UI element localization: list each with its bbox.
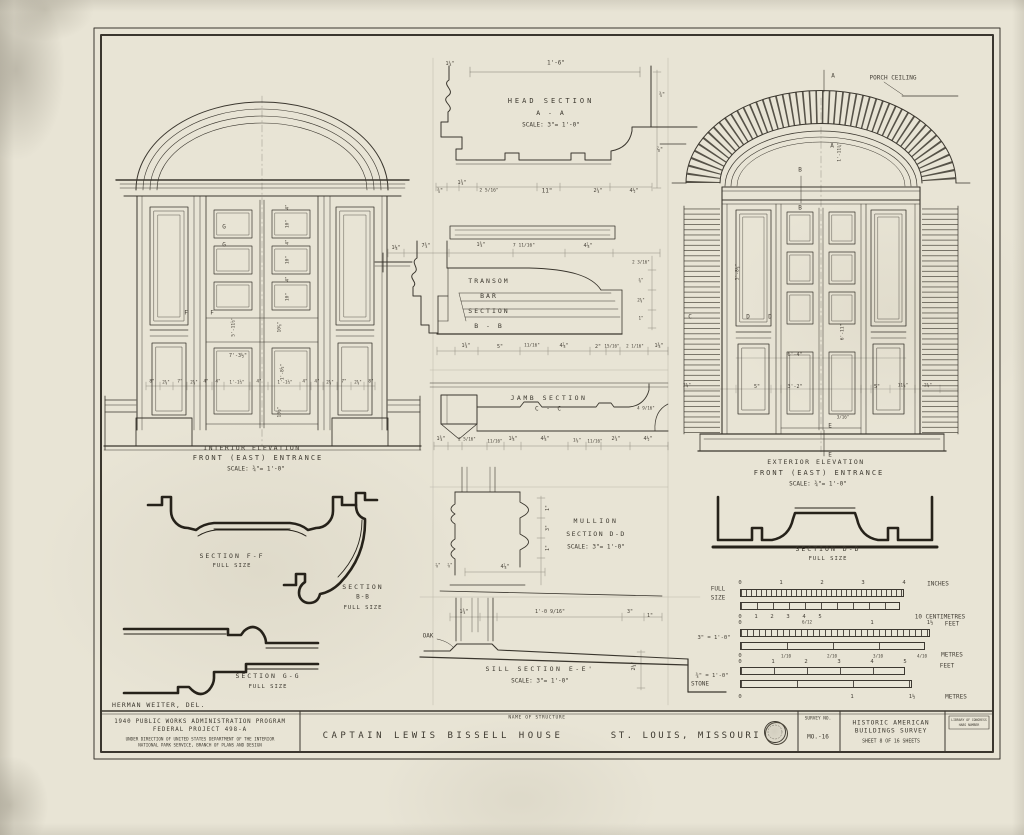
scale-bar-unit: METRES xyxy=(945,694,967,701)
scale-bar-unit: METRES xyxy=(941,652,963,659)
dimension-label: 4⅞" xyxy=(583,243,592,249)
dimension-label: 4" xyxy=(302,380,307,385)
dimension-label: 7¾" xyxy=(421,243,430,249)
title-block-program-line3: UNDER DIRECTION OF UNITED STATES DEPARTM… xyxy=(126,737,275,742)
dimension-label: 1'-0 9/16" xyxy=(535,609,565,615)
dimension-label: G xyxy=(222,224,226,231)
porch-ceiling-label: PORCH CEILING xyxy=(870,75,917,82)
dimension-label: 2¼" xyxy=(631,661,637,670)
dimension-labels-layer: 1'-6"1¼"¾"1¾"2 5/16"11"2¼"4½"¾"⅞"1⅛"7¾"1… xyxy=(0,0,1024,835)
dimension-label: 4⅜" xyxy=(540,436,549,442)
sill-section-title: SILL SECTION E-E' xyxy=(485,665,594,673)
dimension-label: 7 11/16" xyxy=(513,244,535,249)
dimension-label: 1" xyxy=(638,316,643,321)
library-of-congress-line1: LIBRARY OF CONGRESS xyxy=(951,718,986,722)
transom-section-title-4: B - B xyxy=(474,322,504,330)
dimension-label: 4" xyxy=(286,276,291,282)
dimension-label: 2¼" xyxy=(611,436,620,442)
dimension-label: F xyxy=(184,310,188,317)
mullion-section-subtitle: SECTION D-D xyxy=(566,530,626,538)
dimension-label: 3 xyxy=(861,580,864,586)
dimension-label: 5" xyxy=(874,384,880,390)
dimension-label: 3" xyxy=(627,609,633,615)
exterior-elevation-title: EXTERIOR ELEVATION xyxy=(767,458,864,466)
head-section-title: HEAD SECTION xyxy=(508,97,595,105)
structure-name: CAPTAIN LEWIS BISSELL HOUSE xyxy=(323,731,564,741)
scale-bar-label: 3" = 1'-0" xyxy=(697,635,730,641)
dimension-label: 6'-4" xyxy=(787,352,802,358)
mullion-section-scale: SCALE: 3"= 1'-0" xyxy=(567,544,625,551)
dimension-label: 4" xyxy=(215,380,220,385)
name-of-structure-label: NAME OF STRUCTURE xyxy=(508,716,565,721)
scale-bar-label: SIZE xyxy=(711,595,725,602)
dimension-label: 1'-1½" xyxy=(229,380,244,385)
dimension-label: 1¼" xyxy=(445,61,454,67)
dimension-label: 1¾" xyxy=(461,343,470,349)
section-marker-a: A xyxy=(831,73,835,80)
structure-location: ST. LOUIS, MISSOURI xyxy=(611,731,761,741)
habs-title-line1: HISTORIC AMERICAN xyxy=(853,720,930,727)
dimension-label: 11¼" xyxy=(898,384,909,389)
dimension-label: 8" xyxy=(149,380,154,385)
dimension-label: STONE xyxy=(691,681,709,688)
dimension-label: ¾" xyxy=(659,92,665,98)
dimension-label: 1¾" xyxy=(457,180,466,186)
dimension-label: 10" xyxy=(286,256,291,264)
dimension-label: 1 xyxy=(779,580,782,586)
dimension-label: 0 xyxy=(738,694,741,700)
head-section-scale: SCALE: 3"= 1'-0" xyxy=(522,122,580,129)
scale-bar-unit: FEET xyxy=(945,621,959,628)
scale-bar-unit: INCHES xyxy=(927,581,949,588)
dimension-label: 2 5/16" xyxy=(479,189,498,194)
dimension-label: 2 5/16" xyxy=(458,437,476,442)
scale-bar-label: ¾" = 1'-0" xyxy=(695,673,728,679)
dimension-label: 11/16" xyxy=(487,439,502,444)
title-block-program-line1: 1940 PUBLIC WORKS ADMINISTRATION PROGRAM xyxy=(114,719,286,725)
dimension-label: G xyxy=(222,242,226,249)
dimension-label: 4 xyxy=(902,580,905,586)
section-gg-title: SECTION G-G xyxy=(235,672,300,680)
section-bb-size: FULL SIZE xyxy=(344,605,383,611)
survey-stamp xyxy=(765,722,788,745)
dimension-label: 1'-11¾" xyxy=(838,142,843,161)
dimension-label: 6/12 xyxy=(802,620,812,625)
dimension-label: 4" xyxy=(314,380,319,385)
dimension-label: 2⅜" xyxy=(637,298,645,303)
dimension-label: 1'-1½" xyxy=(277,380,292,385)
dimension-label: 4½" xyxy=(643,436,652,442)
scale-bar-unit: 10 CENTIMETRES xyxy=(915,614,966,621)
dimension-label: 4" xyxy=(203,380,208,385)
dimension-label: 4" xyxy=(256,380,261,385)
interior-elevation-scale: SCALE: ¾"= 1'-0" xyxy=(227,466,285,473)
section-marker-e: E xyxy=(828,423,832,430)
dimension-label: 1⅛" xyxy=(573,439,581,444)
dimension-label: 0 xyxy=(738,580,741,586)
dimension-label: 11/16" xyxy=(587,439,602,444)
delineator-credit: HERMAN WEITER, DEL. xyxy=(112,701,205,709)
dimension-label: 11/16" xyxy=(524,344,540,349)
dimension-label: 2 xyxy=(804,659,807,665)
dimension-label: 4⅞" xyxy=(559,343,568,349)
mullion-section-title: MULLION xyxy=(574,517,619,525)
dimension-label: 2 3/16" xyxy=(632,260,650,265)
dimension-label: ⅞" xyxy=(435,564,440,569)
dimension-label: 0 xyxy=(738,659,741,665)
dimension-label: 5 xyxy=(818,614,821,620)
dimension-label: 7'-3½" xyxy=(229,353,247,359)
dimension-label: 7" xyxy=(341,380,346,385)
section-marker-b: B xyxy=(798,205,802,212)
dimension-label: 3'-2" xyxy=(787,384,802,390)
jamb-section-subtitle: C - C xyxy=(535,406,563,413)
dimension-label: 1¾" xyxy=(476,242,485,248)
dimension-label: 1⅛" xyxy=(391,245,400,251)
dimension-label: 1/10 xyxy=(781,654,791,659)
title-block-program-line4: NATIONAL PARK SERVICE, BRANCH OF PLANS A… xyxy=(138,743,262,748)
transom-section-title-1: TRANSOM xyxy=(468,277,509,285)
dimension-label: 1½ xyxy=(909,694,916,700)
dimension-label: 4⅞" xyxy=(500,564,509,570)
head-section-subtitle: A - A xyxy=(536,109,566,117)
dimension-label: 5'-8⅛" xyxy=(736,264,741,281)
dimension-label: 2 xyxy=(820,580,823,586)
scale-bar-label: FULL xyxy=(711,586,725,593)
dimension-label: 4" xyxy=(286,239,291,245)
dimension-label: 1'-8½" xyxy=(281,364,286,381)
dimension-label: 2¾" xyxy=(683,384,691,389)
dimension-label: 10⅞" xyxy=(278,321,283,332)
dimension-label: 4" xyxy=(286,204,291,210)
jamb-section-title: JAMB SECTION xyxy=(511,394,588,402)
dimension-label: 2" xyxy=(595,344,601,350)
dimension-label: 1⅛" xyxy=(508,436,517,442)
dimension-label: 5 xyxy=(903,659,906,665)
dimension-label: F xyxy=(210,310,214,317)
dimension-label: 1 xyxy=(870,620,873,626)
section-marker-d: D xyxy=(768,314,772,321)
dimension-label: 15/16" xyxy=(604,344,619,349)
dimension-label: 3 xyxy=(786,614,789,620)
dimension-label: 6'-11" xyxy=(841,324,846,341)
exterior-elevation-scale: SCALE: ¾"= 1'-0" xyxy=(789,481,847,488)
habs-drawing-sheet: 1'-6"1¼"¾"1¾"2 5/16"11"2¼"4½"¾"⅞"1⅛"7¾"1… xyxy=(0,0,1024,835)
dimension-label: 2⅝" xyxy=(326,380,334,385)
dimension-label: 2¼" xyxy=(593,188,602,194)
section-ff-size: FULL SIZE xyxy=(213,563,252,569)
dimension-label: 2 xyxy=(770,614,773,620)
dimension-label: 3" xyxy=(545,525,551,531)
habs-title-line2: BUILDINGS SURVEY xyxy=(855,728,927,735)
section-bb-title: SECTION xyxy=(342,583,383,591)
dimension-label: 1¾" xyxy=(436,436,445,442)
dimension-label: 4½" xyxy=(629,188,638,194)
dimension-label: 10½" xyxy=(278,406,283,417)
scale-bar-unit: FEET xyxy=(940,663,954,670)
dimension-label: 3 xyxy=(837,659,840,665)
dimension-label: 1" xyxy=(545,505,551,511)
dimension-label: 1" xyxy=(545,545,551,551)
dimension-label: 2⅝" xyxy=(190,380,198,385)
dimension-label: 1 xyxy=(771,659,774,665)
dimension-label: 1 xyxy=(754,614,757,620)
dimension-label: 1" xyxy=(647,613,653,619)
survey-no-value: MO.-16 xyxy=(807,734,829,741)
dimension-label: 7" xyxy=(177,380,182,385)
dimension-label: 1 xyxy=(850,694,853,700)
dimension-label: 11" xyxy=(542,188,553,195)
dimension-label: 3/10 xyxy=(873,654,883,659)
dimension-label: 2⅝" xyxy=(354,380,362,385)
section-marker-a: A xyxy=(830,143,834,150)
dimension-label: ¾" xyxy=(437,188,443,194)
sheet-number: SHEET 8 OF 16 SHEETS xyxy=(862,740,920,745)
dimension-label: ⅜" xyxy=(638,278,643,283)
dimension-label: 2¾" xyxy=(924,384,932,389)
section-marker-d: D xyxy=(746,314,750,321)
dimension-label: 2⅝" xyxy=(162,380,170,385)
dimension-label: OAK xyxy=(423,633,434,640)
dimension-label: 1¾" xyxy=(459,609,468,615)
dimension-label: 2 1/16" xyxy=(626,344,644,349)
section-marker-c: C xyxy=(688,314,692,321)
section-ff-title: SECTION F-F xyxy=(199,552,264,560)
section-dd-size: FULL SIZE xyxy=(809,556,848,562)
dimension-label: 5" xyxy=(497,344,503,350)
interior-elevation-subtitle: FRONT (EAST) ENTRANCE xyxy=(193,454,324,462)
interior-elevation-title: INTERIOR ELEVATION xyxy=(203,444,300,452)
title-block-program-line2: FEDERAL PROJECT 498-A xyxy=(153,727,247,733)
dimension-label: 10" xyxy=(286,293,291,301)
section-marker-b: B xyxy=(798,167,802,174)
dimension-label: 4 9/16" xyxy=(637,406,655,411)
section-gg-size: FULL SIZE xyxy=(249,684,288,690)
dimension-label: 1'-6" xyxy=(547,60,565,67)
dimension-label: 1⅜" xyxy=(654,343,663,349)
section-bb-subtitle: B-B xyxy=(356,594,370,601)
dimension-label: 5" xyxy=(754,384,760,390)
exterior-elevation-subtitle: FRONT (EAST) ENTRANCE xyxy=(754,469,885,477)
dimension-label: 8" xyxy=(368,380,373,385)
dimension-label: 4 xyxy=(870,659,873,665)
dimension-label: 3/16" xyxy=(837,415,850,420)
dimension-label: 10" xyxy=(286,220,291,228)
transom-section-title-3: SECTION xyxy=(468,307,509,315)
sill-section-scale: SCALE: 3"= 1'-0" xyxy=(511,678,569,685)
dimension-label: 0 xyxy=(738,620,741,626)
survey-no-label: SURVEY NO. xyxy=(805,717,831,722)
dimension-label: 4/10 xyxy=(917,654,927,659)
section-dd-title: SECTION D-D xyxy=(795,545,860,553)
transom-section-title-2: BAR xyxy=(480,292,498,300)
dimension-label: 2/10 xyxy=(827,654,837,659)
dimension-label: ⅞" xyxy=(447,564,452,569)
dimension-label: 5'-11½" xyxy=(232,317,237,336)
dimension-label: 1½ xyxy=(927,620,934,626)
dimension-label: ⅞" xyxy=(657,147,663,153)
library-of-congress-line2: HABS NUMBER xyxy=(959,723,980,727)
